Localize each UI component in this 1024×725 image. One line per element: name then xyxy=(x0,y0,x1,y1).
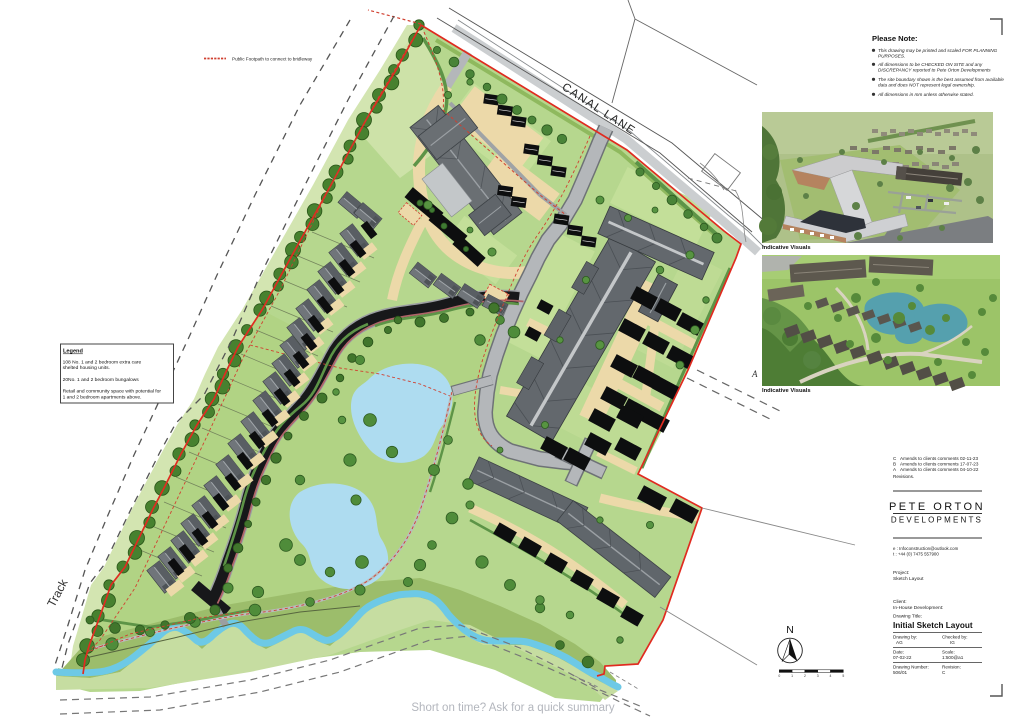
svg-text:1: 1 xyxy=(791,674,793,678)
svg-text:17-07-23: 17-07-23 xyxy=(960,462,979,467)
svg-text:All dimensions to be CHECKED O: All dimensions to be CHECKED ON SITE and… xyxy=(877,62,983,67)
svg-text:AG: AG xyxy=(896,640,903,645)
svg-text:Revisions.: Revisions. xyxy=(893,474,914,479)
svg-text:2: 2 xyxy=(804,674,806,678)
svg-text:20No. 1 and 2 bedroom bungalow: 20No. 1 and 2 bedroom bungalows xyxy=(63,377,140,383)
svg-text:Legend: Legend xyxy=(63,349,83,355)
svg-text:C: C xyxy=(893,456,897,461)
svg-text:Revision:: Revision: xyxy=(942,665,961,670)
svg-text:DEVELOPMENTS: DEVELOPMENTS xyxy=(891,516,983,525)
svg-text:Sketch Layout: Sketch Layout xyxy=(893,576,924,582)
svg-text:Indicative Visuals: Indicative Visuals xyxy=(762,245,811,251)
svg-text:Public Footpath to connect to: Public Footpath to connect to bridleway xyxy=(232,57,313,62)
svg-text:Amends to clients comments: Amends to clients comments xyxy=(900,462,959,467)
svg-text:4: 4 xyxy=(830,674,832,678)
svg-text:A: A xyxy=(893,467,897,472)
svg-text:Date:: Date: xyxy=(893,650,904,655)
svg-text:B: B xyxy=(893,462,896,467)
svg-text:5: 5 xyxy=(842,674,844,678)
svg-text:Drawing Number:: Drawing Number: xyxy=(893,665,929,670)
svg-text:0: 0 xyxy=(778,674,780,678)
svg-text:All dimensions in mm unless ot: All dimensions in mm unless otherwise st… xyxy=(877,92,974,97)
svg-text:Checked by:: Checked by: xyxy=(942,635,968,640)
svg-text:PURPOSES.: PURPOSES. xyxy=(878,54,905,59)
svg-text:Short on time? Ask for a quick: Short on time? Ask for a quick summary xyxy=(411,702,614,714)
svg-text:Please Note:: Please Note: xyxy=(872,34,918,43)
svg-text:Client:: Client: xyxy=(893,599,907,605)
svg-text:Retail and community space wit: Retail and community space with potentia… xyxy=(63,389,162,395)
svg-text:The site boundary shown is the: The site boundary shown is the best assu… xyxy=(878,77,1004,82)
svg-text:Amends to clients comments: Amends to clients comments xyxy=(900,467,959,472)
svg-text:data and does NOT represent le: data and does NOT represent legal owners… xyxy=(878,83,975,88)
svg-text:Drawing by:: Drawing by: xyxy=(893,635,917,640)
svg-text:Scale:: Scale: xyxy=(942,650,955,655)
svg-text:In-House Development:: In-House Development: xyxy=(893,605,943,611)
svg-text:DISCREPANCY reported to Pete O: DISCREPANCY reported to Pete Orton Devel… xyxy=(878,68,991,73)
svg-text:This drawing may be printed an: This drawing may be printed and scaled F… xyxy=(878,48,998,53)
svg-text:108 No. 1 and 2 bedroom extra: 108 No. 1 and 2 bedroom extra care xyxy=(63,360,142,366)
svg-text:shelted housing units.: shelted housing units. xyxy=(63,365,110,371)
svg-text:C: C xyxy=(942,670,946,675)
svg-text:1 and 2 bedroom apartments abo: 1 and 2 bedroom apartments above. xyxy=(63,395,142,401)
svg-text:506/01: 506/01 xyxy=(893,670,907,675)
svg-text:Track: Track xyxy=(44,576,71,610)
svg-text:Initial Sketch Layout: Initial Sketch Layout xyxy=(893,621,973,630)
svg-text:07-02-22: 07-02-22 xyxy=(893,655,912,660)
svg-text:t : +44 (0) 7475 557900: t : +44 (0) 7475 557900 xyxy=(893,552,939,557)
svg-text:Drawing Title:: Drawing Title: xyxy=(893,614,922,620)
svg-text:3: 3 xyxy=(817,674,819,678)
svg-text:N: N xyxy=(786,624,794,636)
svg-text:1:500@a1: 1:500@a1 xyxy=(942,655,964,660)
svg-text:PETE ORTON: PETE ORTON xyxy=(889,501,985,513)
svg-text:A: A xyxy=(751,369,758,379)
svg-text:e : Infoconstruction@outlook.: e : Infoconstruction@outlook.com xyxy=(893,546,959,551)
svg-text:Indicative Visuals: Indicative Visuals xyxy=(762,388,811,394)
svg-text:Project:: Project: xyxy=(893,570,909,576)
svg-text:02-11-23: 02-11-23 xyxy=(960,456,978,461)
svg-text:IG: IG xyxy=(950,640,955,645)
svg-text:Amends to clients comments: Amends to clients comments xyxy=(900,456,959,461)
svg-text:04-10-22: 04-10-22 xyxy=(960,467,979,472)
